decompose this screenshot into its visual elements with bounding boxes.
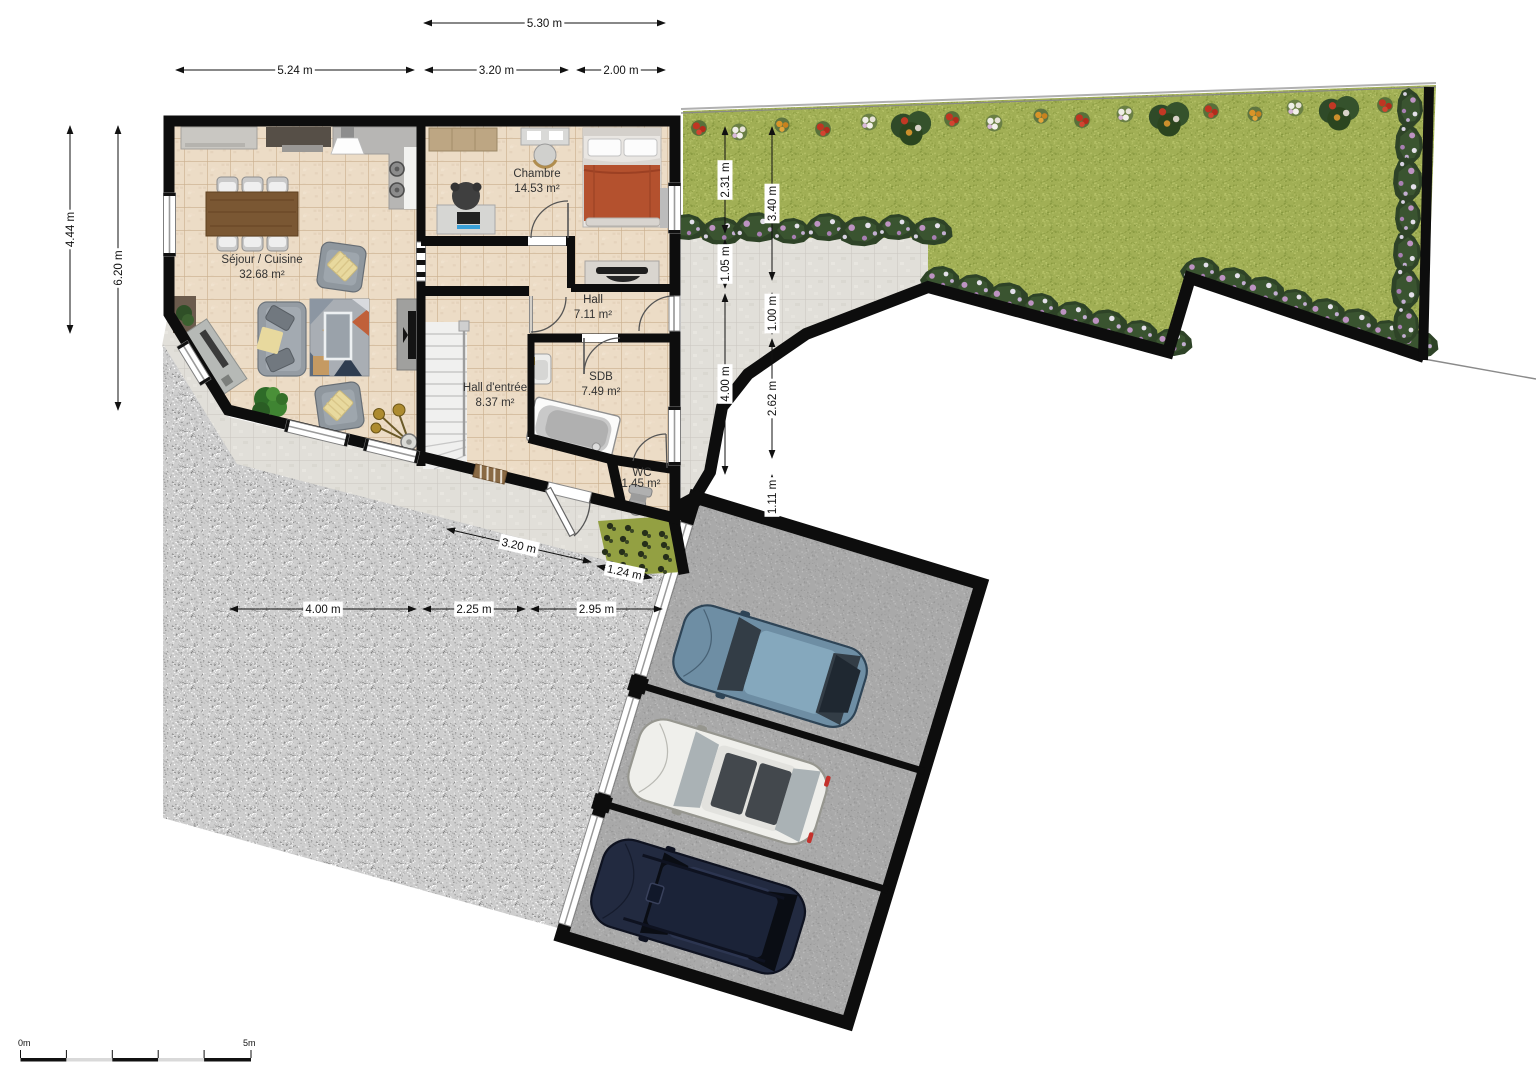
svg-text:1.11 m: 1.11 m — [767, 480, 779, 514]
svg-text:Chambre: Chambre — [513, 168, 560, 180]
svg-text:3.20 m: 3.20 m — [479, 65, 514, 77]
svg-text:3.40 m: 3.40 m — [767, 186, 779, 221]
svg-text:Hall d'entrée: Hall d'entrée — [463, 382, 527, 394]
svg-text:5.30 m: 5.30 m — [527, 18, 562, 30]
svg-text:2.00 m: 2.00 m — [603, 65, 638, 77]
svg-text:4.00 m: 4.00 m — [720, 366, 732, 401]
svg-text:SDB: SDB — [589, 371, 613, 383]
svg-text:0m: 0m — [18, 1038, 31, 1048]
svg-text:8.37 m²: 8.37 m² — [476, 397, 515, 409]
svg-text:5m: 5m — [243, 1038, 256, 1048]
svg-text:14.53 m²: 14.53 m² — [514, 183, 560, 195]
svg-text:1.05 m: 1.05 m — [720, 246, 732, 281]
svg-text:Séjour / Cuisine: Séjour / Cuisine — [221, 254, 302, 266]
svg-text:Hall: Hall — [583, 294, 603, 306]
svg-text:7.49 m²: 7.49 m² — [582, 386, 621, 398]
svg-text:2.95 m: 2.95 m — [579, 604, 614, 616]
svg-text:1.45 m²: 1.45 m² — [622, 478, 661, 490]
svg-text:6.20 m: 6.20 m — [113, 250, 125, 285]
svg-text:4.00 m: 4.00 m — [305, 604, 340, 616]
svg-text:2.31 m: 2.31 m — [720, 162, 732, 197]
svg-text:4.44 m: 4.44 m — [65, 212, 77, 247]
svg-text:2.62 m: 2.62 m — [767, 381, 779, 416]
svg-text:5.24 m: 5.24 m — [277, 65, 312, 77]
svg-text:7.11 m²: 7.11 m² — [574, 309, 612, 321]
svg-text:2.25 m: 2.25 m — [456, 604, 491, 616]
svg-text:1.00 m: 1.00 m — [767, 296, 779, 331]
svg-text:32.68 m²: 32.68 m² — [239, 269, 285, 281]
